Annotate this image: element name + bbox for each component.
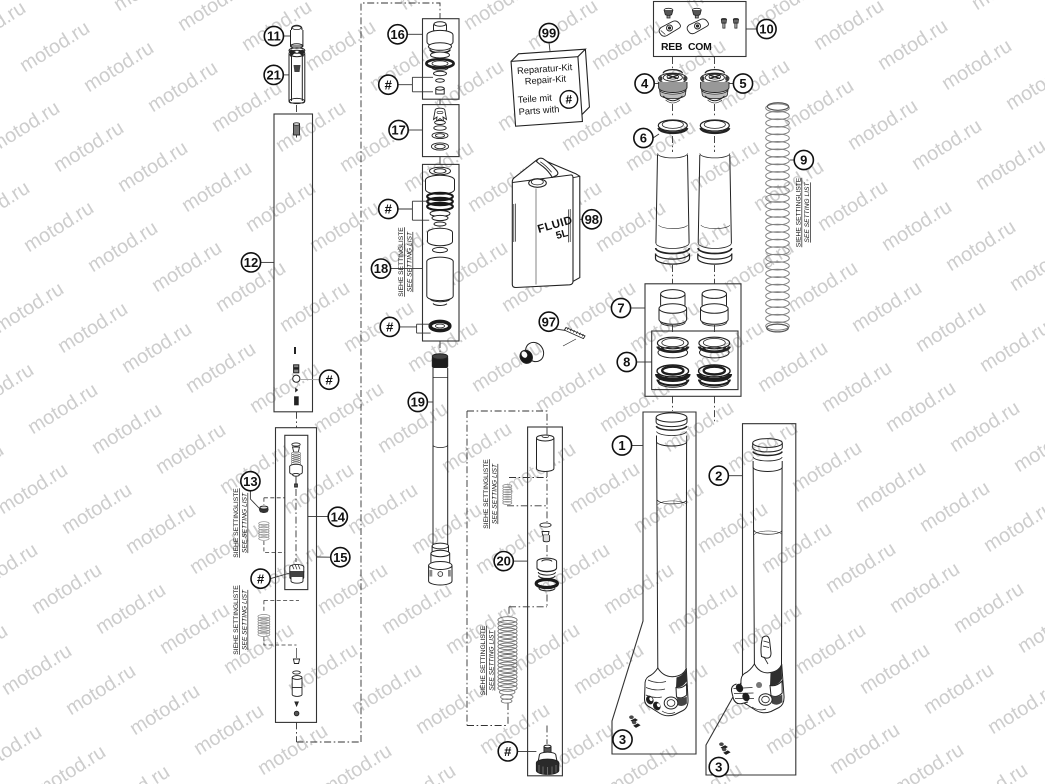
svg-text:#: # xyxy=(385,77,393,92)
svg-text:6: 6 xyxy=(640,131,647,146)
svg-text:1: 1 xyxy=(618,438,625,453)
svg-text:SEE SETTING LIST: SEE SETTING LIST xyxy=(492,463,499,524)
svg-text:SEE SETTING LIST: SEE SETTING LIST xyxy=(489,629,496,690)
svg-text:2: 2 xyxy=(715,468,722,483)
svg-text:SEE SETTING LIST: SEE SETTING LIST xyxy=(804,181,811,242)
svg-text:17: 17 xyxy=(391,123,405,138)
svg-text:SIEHE SETTINGLISTE: SIEHE SETTINGLISTE xyxy=(480,625,487,695)
svg-text:SIEHE SETTINGLISTE: SIEHE SETTINGLISTE xyxy=(233,585,240,655)
svg-text:SIEHE SETTINGLISTE: SIEHE SETTINGLISTE xyxy=(233,488,240,558)
svg-text:97: 97 xyxy=(542,314,556,329)
svg-text:SIEHE SETTINGLISTE: SIEHE SETTINGLISTE xyxy=(483,459,490,529)
svg-text:8: 8 xyxy=(623,355,630,370)
svg-text:5: 5 xyxy=(739,76,746,91)
svg-text:3: 3 xyxy=(715,760,722,775)
svg-text:11: 11 xyxy=(267,29,281,44)
svg-text:#: # xyxy=(504,744,512,759)
svg-text:#: # xyxy=(565,92,573,106)
svg-text:3: 3 xyxy=(619,732,626,747)
svg-text:#: # xyxy=(385,202,393,217)
svg-text:7: 7 xyxy=(617,301,624,316)
svg-text:99: 99 xyxy=(542,26,556,41)
svg-text:20: 20 xyxy=(496,554,510,569)
svg-text:SEE SETTING LIST: SEE SETTING LIST xyxy=(242,492,249,553)
svg-text:98: 98 xyxy=(585,212,599,227)
svg-text:#: # xyxy=(386,320,394,335)
svg-text:#: # xyxy=(325,372,333,387)
svg-text:4: 4 xyxy=(641,76,649,91)
svg-text:19: 19 xyxy=(411,395,425,410)
svg-text:SIEHE SETTINGLISTE: SIEHE SETTINGLISTE xyxy=(398,227,405,297)
svg-text:15: 15 xyxy=(333,550,347,565)
svg-text:13: 13 xyxy=(243,474,257,489)
svg-text:SEE SETTING LIST: SEE SETTING LIST xyxy=(407,231,414,292)
svg-text:SEE SETTING LIST: SEE SETTING LIST xyxy=(242,589,249,650)
svg-text:10: 10 xyxy=(759,22,773,37)
svg-text:SIEHE SETTINGLISTE: SIEHE SETTINGLISTE xyxy=(796,177,803,247)
svg-text:#: # xyxy=(257,571,265,586)
svg-text:16: 16 xyxy=(390,27,404,42)
svg-text:14: 14 xyxy=(331,509,346,524)
svg-text:COM: COM xyxy=(688,42,712,53)
svg-text:21: 21 xyxy=(266,68,280,83)
svg-text:9: 9 xyxy=(800,153,807,168)
svg-text:REB: REB xyxy=(661,42,683,53)
svg-text:18: 18 xyxy=(374,261,388,276)
svg-text:12: 12 xyxy=(244,255,258,270)
